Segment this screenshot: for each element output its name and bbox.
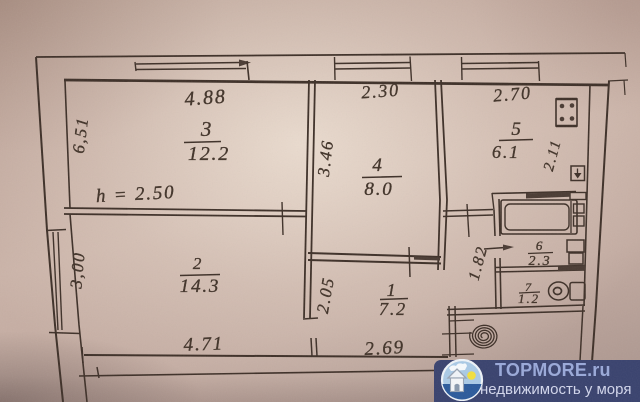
svg-text:1.2: 1.2 bbox=[518, 291, 540, 306]
svg-text:6: 6 bbox=[536, 238, 544, 253]
svg-text:4.71: 4.71 bbox=[183, 333, 224, 355]
svg-text:2.70: 2.70 bbox=[492, 82, 532, 105]
svg-text:12.2: 12.2 bbox=[188, 143, 230, 165]
svg-text:1.82: 1.82 bbox=[466, 244, 492, 282]
svg-text:2.30: 2.30 bbox=[361, 80, 401, 103]
svg-text:2: 2 bbox=[193, 254, 203, 273]
svg-text:2.69: 2.69 bbox=[364, 337, 405, 360]
svg-text:3: 3 bbox=[200, 117, 213, 141]
svg-text:6,51: 6,51 bbox=[69, 115, 92, 154]
svg-text:4.88: 4.88 bbox=[184, 86, 228, 111]
svg-text:2.05: 2.05 bbox=[313, 275, 338, 315]
svg-text:5: 5 bbox=[511, 119, 522, 140]
svg-text:h = 2.50: h = 2.50 bbox=[95, 182, 175, 207]
svg-text:8.0: 8.0 bbox=[364, 179, 393, 200]
svg-text:7.2: 7.2 bbox=[379, 299, 407, 319]
svg-text:6.1: 6.1 bbox=[492, 142, 520, 162]
svg-text:3.46: 3.46 bbox=[314, 138, 337, 178]
svg-text:2.11: 2.11 bbox=[541, 138, 565, 173]
svg-text:3,00: 3,00 bbox=[66, 251, 88, 290]
svg-text:4: 4 bbox=[372, 155, 383, 176]
svg-text:1: 1 bbox=[387, 280, 398, 300]
svg-text:2.3: 2.3 bbox=[529, 254, 552, 269]
svg-text:14.3: 14.3 bbox=[180, 276, 220, 297]
